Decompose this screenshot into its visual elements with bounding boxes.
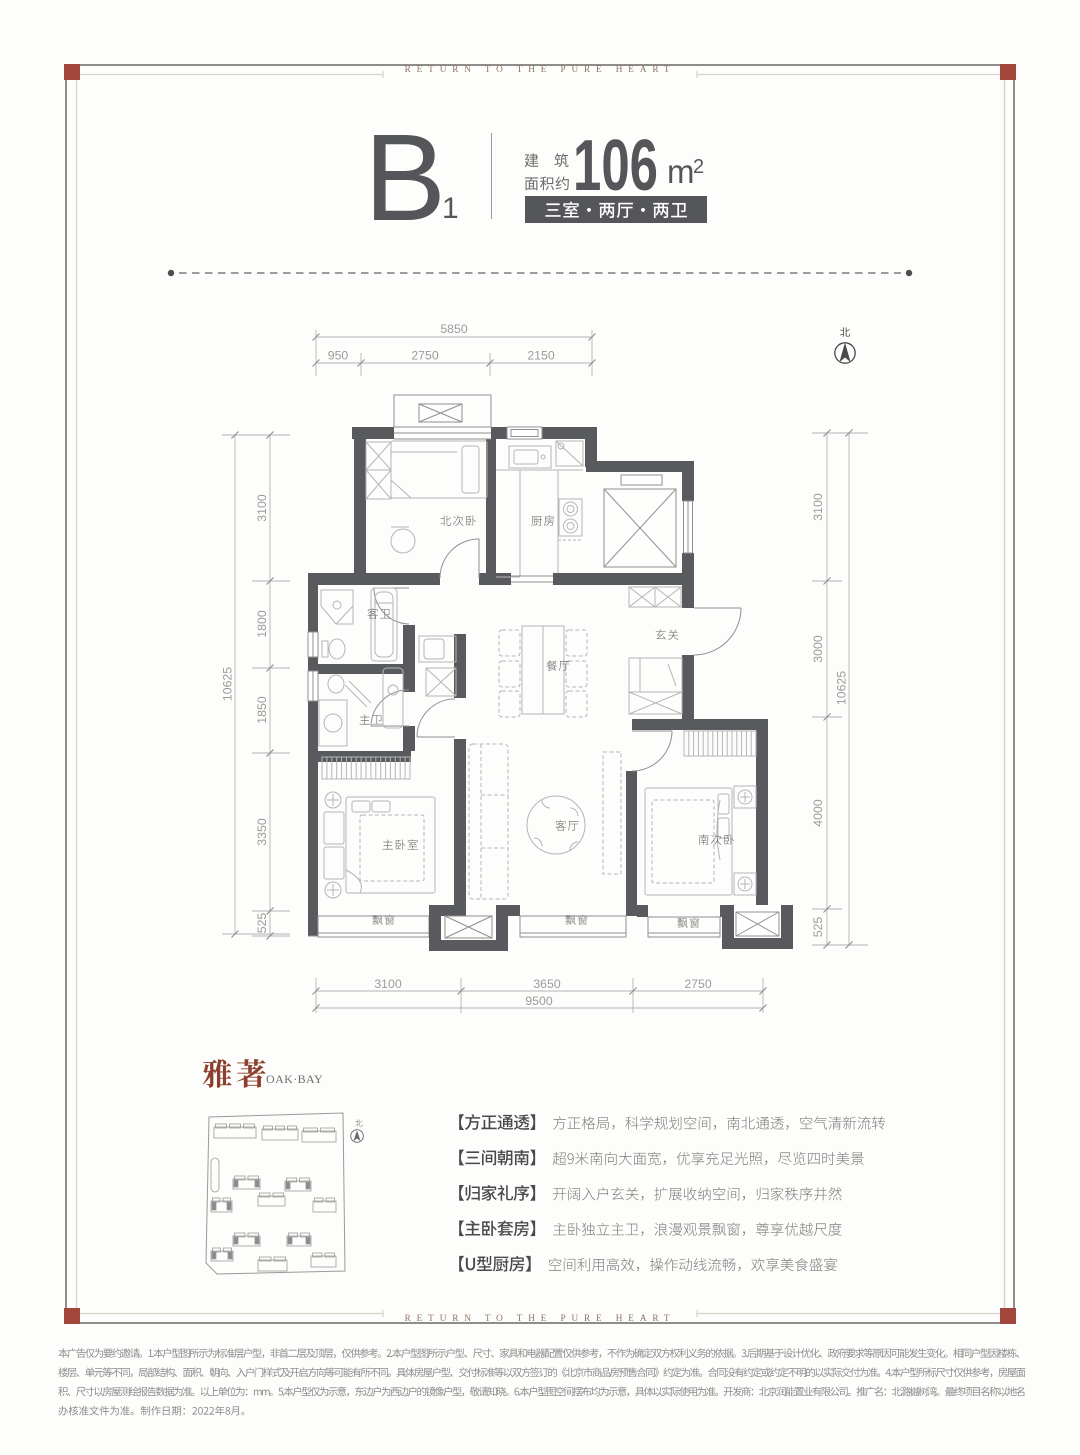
svg-text:3100: 3100	[255, 494, 269, 522]
svg-text:1: 1	[442, 192, 459, 225]
svg-text:2750: 2750	[411, 349, 439, 363]
svg-text:10625: 10625	[221, 667, 235, 701]
svg-text:3350: 3350	[255, 818, 269, 846]
svg-text:950: 950	[328, 349, 349, 363]
svg-text:1850: 1850	[255, 696, 269, 724]
svg-text:m: m	[667, 153, 695, 190]
svg-text:RETURN TO THE PURE HEART: RETURN TO THE PURE HEART	[405, 1313, 676, 1323]
svg-text:B: B	[364, 110, 446, 247]
svg-text:106: 106	[573, 126, 658, 206]
svg-text:2: 2	[693, 156, 704, 178]
svg-text:OAK·BAY: OAK·BAY	[266, 1072, 323, 1086]
svg-text:3000: 3000	[811, 635, 825, 663]
svg-text:3100: 3100	[374, 977, 402, 991]
svg-text:3650: 3650	[533, 977, 561, 991]
svg-text:2150: 2150	[527, 349, 555, 363]
svg-text:525: 525	[811, 917, 825, 938]
svg-text:1800: 1800	[255, 610, 269, 638]
svg-text:RETURN TO THE PURE HEART: RETURN TO THE PURE HEART	[405, 64, 676, 74]
svg-text:4000: 4000	[811, 799, 825, 827]
svg-text:2750: 2750	[684, 977, 712, 991]
svg-text:3100: 3100	[811, 493, 825, 521]
svg-text:525: 525	[255, 913, 269, 934]
svg-text:9500: 9500	[525, 994, 553, 1008]
svg-text:10625: 10625	[835, 671, 849, 705]
svg-text:5850: 5850	[440, 322, 468, 336]
